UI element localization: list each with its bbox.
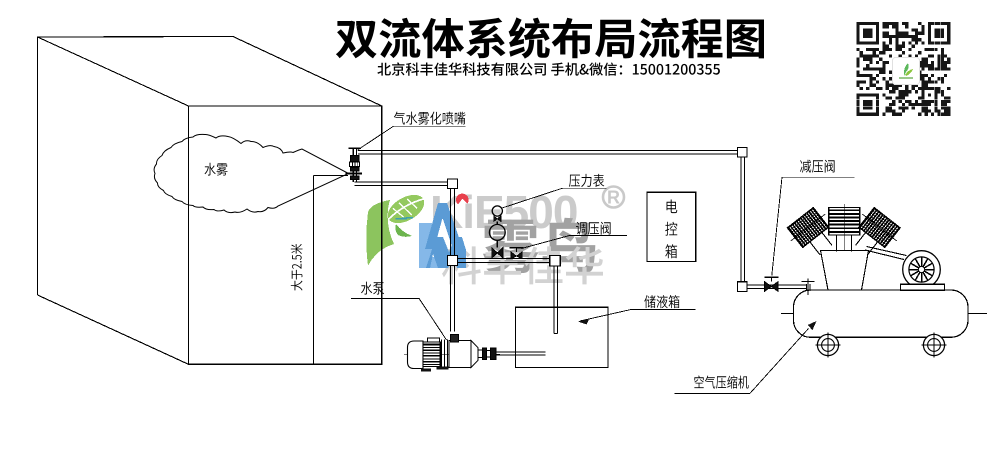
- svg-text:R: R: [607, 188, 620, 208]
